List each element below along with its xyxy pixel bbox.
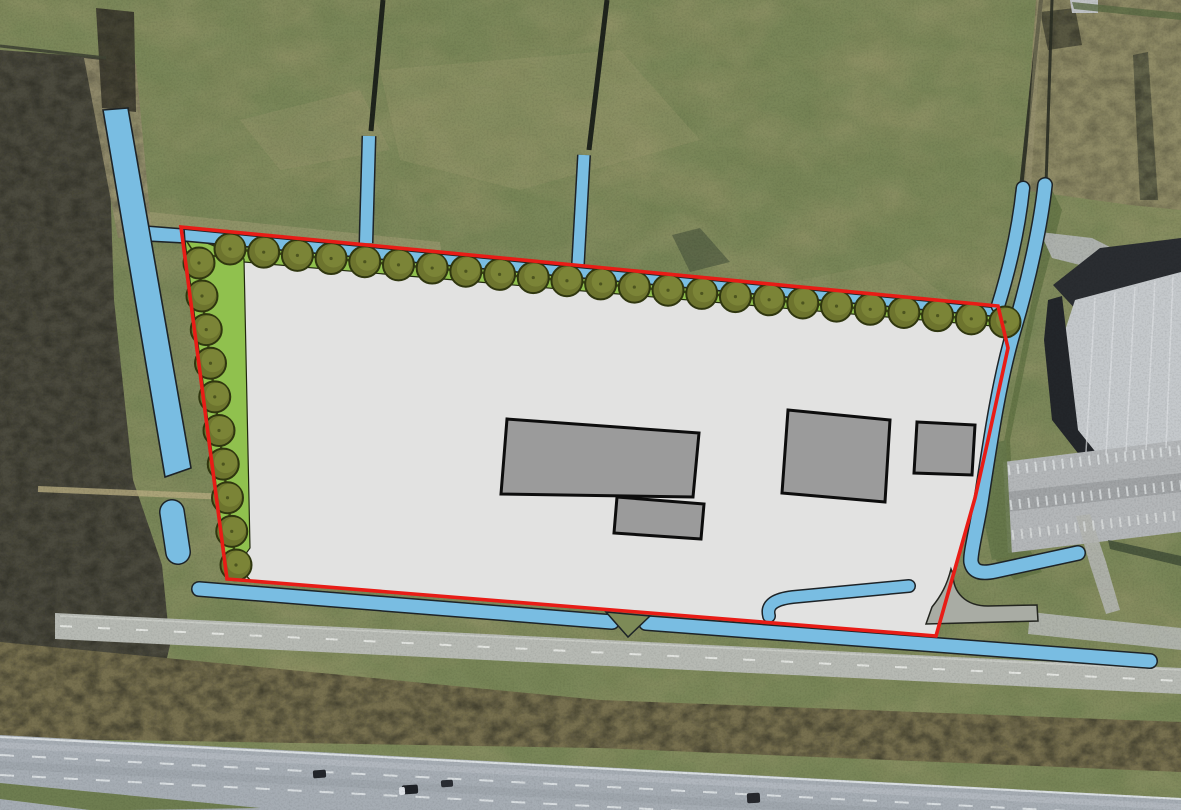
tree-row-north-tree-center — [970, 317, 973, 320]
tree-row-north-tree-crown — [457, 257, 480, 280]
tree-row-west-tree-center — [234, 563, 237, 566]
tree-row-north-tree-center — [498, 273, 501, 276]
tree-row-north-tree-crown — [895, 298, 918, 321]
tree-row-north-tree-crown — [322, 245, 345, 268]
tree-row-north-tree-center — [296, 254, 299, 257]
tree-row-west-tree-crown — [206, 383, 229, 406]
tree-row-west-tree-center — [222, 463, 225, 466]
building-large — [501, 419, 699, 497]
tree-row-west-tree-center — [213, 395, 216, 398]
tree-row-north-tree-crown — [356, 248, 379, 271]
tree-corner-crown — [190, 249, 213, 272]
tree-row-north-tree-center — [734, 295, 737, 298]
tree-row-west-tree-crown — [197, 316, 220, 339]
tree-row-north-tree-center — [329, 257, 332, 260]
tree-row-north-tree-crown — [423, 254, 446, 277]
building-small-annex — [614, 497, 704, 539]
screenshot-root — [0, 0, 1181, 810]
tree-row-north-tree-crown — [255, 238, 278, 261]
tree-row-north-tree-crown — [861, 295, 884, 318]
water-ditch-north-1 — [366, 136, 369, 243]
tree-row-north-tree-center — [869, 308, 872, 311]
tree-row-north-tree-center — [565, 279, 568, 282]
tree-row-west-tree-center — [200, 294, 203, 297]
tree-row-north-tree-center — [599, 282, 602, 285]
tree-row-north-tree-crown — [592, 270, 615, 293]
tree-row-north-tree-crown — [828, 292, 851, 315]
tree-row-north-tree-center — [666, 289, 669, 292]
tree-row-north-tree-center — [262, 251, 265, 254]
tree-row-north-tree-center — [532, 276, 535, 279]
tree-row-north-tree-center — [801, 301, 804, 304]
tree-row-north-tree-center — [633, 285, 636, 288]
tree-row-north-tree-crown — [389, 251, 412, 274]
tree-row-north-tree-crown — [491, 260, 514, 283]
tree-row-north-tree-center — [700, 292, 703, 295]
tree-row-north-tree-crown — [962, 305, 985, 328]
tree-row-north-tree-center — [363, 260, 366, 263]
tree-row-north-tree-crown — [625, 273, 648, 296]
tree-row-north-tree-crown — [794, 289, 817, 312]
water-channel-west-lower — [172, 512, 178, 552]
tree-row-north-tree-crown — [558, 267, 581, 290]
tree-row-north-tree-center — [936, 314, 939, 317]
building-east-2 — [914, 422, 975, 475]
tree-row-north-tree-center — [835, 305, 838, 308]
tree-row-north-tree-center — [464, 270, 467, 273]
tree-row-west-tree-center — [205, 328, 208, 331]
tree-row-west-tree-crown — [210, 417, 233, 440]
tree-row-north-tree-crown — [726, 283, 749, 306]
site-plan-svg — [0, 0, 1181, 810]
tree-row-north-tree-center — [768, 298, 771, 301]
tree-row-west-tree-crown — [202, 349, 225, 372]
tree-row-north-tree-center — [228, 247, 231, 250]
tree-row-west-tree-crown — [214, 450, 237, 473]
tree-row-north-tree-crown — [221, 235, 244, 258]
tree-row-north-tree-crown — [659, 276, 682, 299]
tree-corner-center — [197, 261, 200, 264]
tree-row-west-tree-center — [230, 530, 233, 533]
tree-row-west-tree-crown — [223, 517, 246, 540]
tree-row-west-tree-crown — [193, 282, 216, 305]
tree-row-west-tree-center — [209, 362, 212, 365]
building-east-1 — [782, 410, 890, 502]
water-ditch-north-2 — [578, 155, 584, 264]
tree-row-west-tree-crown — [219, 484, 242, 507]
tree-row-north-tree-center — [397, 263, 400, 266]
tree-row-west-tree-center — [226, 496, 229, 499]
tree-row-west-tree-center — [217, 429, 220, 432]
tree-row-north-tree-crown — [288, 241, 311, 264]
tree-row-north-tree-crown — [693, 279, 716, 302]
tree-row-north-tree-crown — [524, 264, 547, 287]
tree-row-north-tree-center — [431, 266, 434, 269]
tree-row-north-tree-center — [902, 311, 905, 314]
tree-row-west-tree-crown — [227, 551, 250, 574]
tree-row-north-tree-crown — [760, 286, 783, 309]
tree-row-north-tree-crown — [929, 302, 952, 325]
